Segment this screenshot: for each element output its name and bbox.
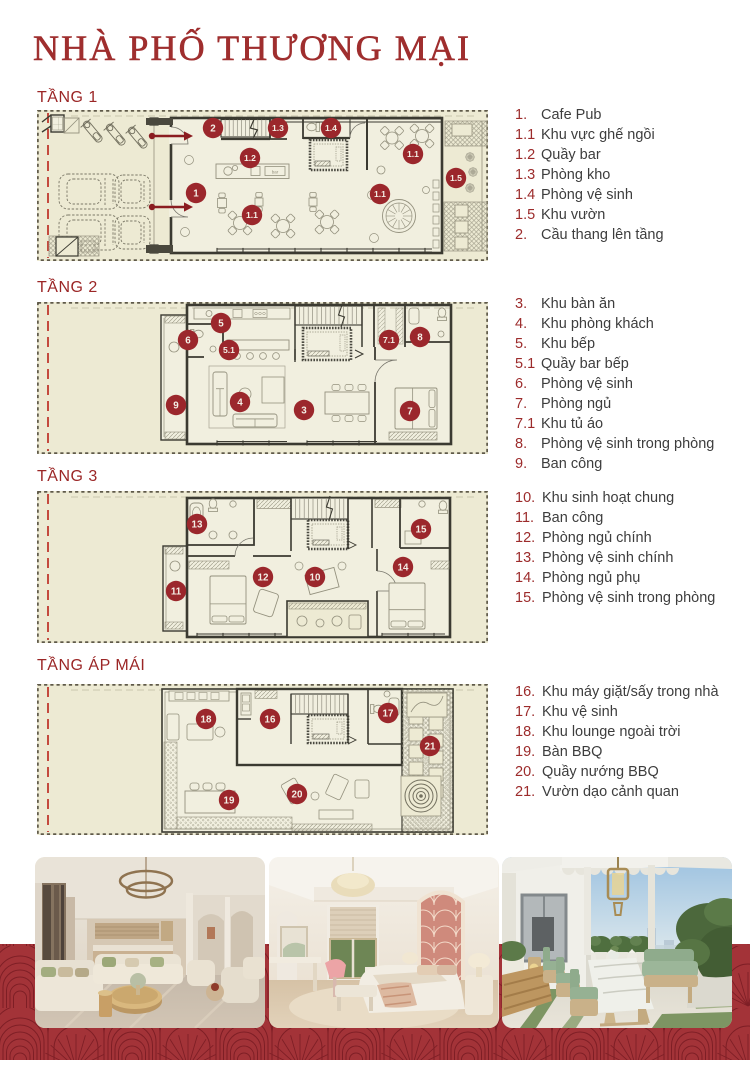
svg-text:1.1: 1.1 — [374, 189, 386, 199]
svg-text:1.3: 1.3 — [272, 123, 284, 133]
svg-text:1.2: 1.2 — [244, 153, 256, 163]
svg-text:1: 1 — [193, 189, 199, 200]
svg-text:1.4: 1.4 — [325, 123, 337, 133]
svg-text:19: 19 — [224, 796, 235, 807]
svg-text:4: 4 — [237, 398, 243, 409]
svg-text:14: 14 — [398, 563, 409, 574]
svg-text:7: 7 — [407, 407, 413, 418]
svg-text:11: 11 — [171, 587, 182, 598]
svg-text:3: 3 — [301, 406, 307, 417]
svg-text:5: 5 — [218, 319, 224, 330]
svg-text:12: 12 — [258, 573, 269, 584]
svg-text:1.1: 1.1 — [407, 149, 419, 159]
svg-text:9: 9 — [173, 401, 179, 412]
svg-text:10: 10 — [310, 573, 321, 584]
svg-text:2: 2 — [210, 124, 216, 135]
svg-text:18: 18 — [201, 715, 212, 726]
svg-text:6: 6 — [185, 336, 191, 347]
svg-text:13: 13 — [192, 520, 203, 531]
svg-text:16: 16 — [265, 715, 276, 726]
svg-text:bar: bar — [272, 170, 279, 175]
svg-text:7.1: 7.1 — [383, 335, 395, 345]
svg-text:8: 8 — [417, 333, 423, 344]
svg-text:20: 20 — [292, 790, 303, 801]
svg-text:1.5: 1.5 — [450, 173, 462, 183]
svg-text:1.1: 1.1 — [246, 210, 258, 220]
svg-text:21: 21 — [425, 742, 436, 753]
svg-text:17: 17 — [383, 709, 394, 720]
svg-text:5.1: 5.1 — [223, 345, 235, 355]
svg-text:15: 15 — [416, 525, 427, 536]
